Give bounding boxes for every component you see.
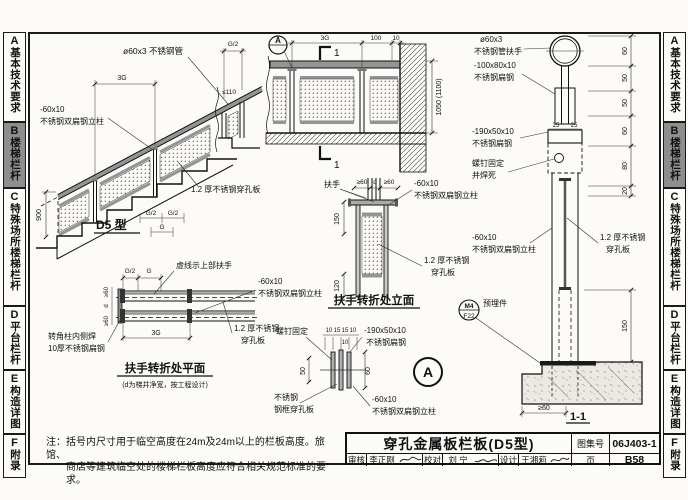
dim-text: 50: [622, 99, 629, 107]
stair-elevation-drawing: 3G G/2 ≤110 900 ø60x3 不锈钢管 -60x10: [36, 41, 262, 259]
dim-da-50: 50: [300, 356, 311, 384]
label-panel-frame-2: 钢框穿孔板: [274, 404, 314, 414]
signature-scribble: [550, 455, 570, 465]
sidebar-item-appendix: F附录: [663, 434, 686, 478]
label-post-desc: 不锈钢双扁钢立柱: [472, 244, 536, 254]
caption-turn-elevation: 扶手转折处立面: [334, 293, 415, 307]
tab-letter: B: [671, 125, 679, 137]
dim-text: 1050 (1100): [436, 78, 443, 115]
sheet-title: 穿孔金属板栏板(D5型): [347, 434, 571, 453]
dim-text: 150: [622, 320, 629, 332]
label-tube-size: ø60x3: [480, 35, 503, 44]
dim-text: 50: [300, 367, 307, 375]
label-tube-desc: 不锈钢管扶手: [474, 46, 522, 56]
tab-label: 特殊场所楼梯栏杆: [8, 203, 21, 291]
label-panel-frame-1: 不锈钢: [274, 392, 298, 402]
dim-text: 25: [571, 123, 578, 129]
tab-letter: B: [11, 125, 19, 137]
dim-text: 20: [622, 187, 629, 195]
label-panel-size: 1.2 厚不锈钢: [424, 255, 469, 265]
label-screw-fix: 螺钉固定: [276, 326, 308, 336]
sidebar-item-special-stair-railing: C特殊场所楼梯栏杆: [3, 188, 26, 306]
tab-letter: F: [671, 437, 678, 449]
dim-text: d: [104, 304, 110, 307]
tab-label: 基本技术要求: [668, 47, 681, 113]
dim-text: G/2: [125, 268, 136, 275]
label-handrail-tube: ø60x3 不锈钢管: [123, 46, 183, 56]
sidebar-item-special-stair-railing: C特殊场所楼梯栏杆: [663, 188, 686, 306]
label-handrail: 扶手: [324, 179, 340, 189]
dim-text: ≥60: [384, 179, 395, 186]
handrail-turn-elevation: ≥60 d ≥60 扶手 150 120 -60x10 不锈钢双扁: [324, 178, 478, 308]
caption-turn-plan-sub: (d为梯井净宽，按工程设计): [122, 380, 208, 389]
sidebar-item-construction-details: E构造详图: [3, 370, 26, 434]
bubble-letter: A: [423, 364, 433, 380]
tab-label: 附录: [668, 449, 681, 471]
tab-label: 平台栏杆: [8, 321, 21, 365]
landing-elevation-drawing: 3G 100 10 1050 (1100) 1 1 A: [266, 35, 443, 172]
label-dashed-handrail: 虚线示上部扶手: [176, 260, 232, 270]
dim-text: 10: [392, 35, 400, 42]
dim-text: 120: [334, 280, 341, 292]
handrail-turn-plan: G/2 G 3G ≥60 d ≥60 虚线示上部扶手 -60x: [48, 260, 322, 389]
dim-text: d: [373, 179, 377, 186]
dim-text: 100: [371, 35, 382, 42]
proofreader-label: 校对: [423, 454, 443, 466]
dim-text: 25: [553, 123, 560, 129]
page-label: 页: [571, 454, 609, 466]
atlas-no-label: 图集号: [571, 434, 609, 453]
dim-text: 15: [334, 328, 341, 334]
label-post-size: -60x10: [372, 395, 397, 404]
label-panel-size: 1.2 厚不锈钢: [600, 232, 645, 242]
sidebar-item-appendix: F附录: [3, 434, 26, 478]
tab-label: 楼梯栏杆: [8, 137, 21, 181]
sheet-note: 注：括号内尺寸用于临空高度在24m及24m以上的栏板高度。旅馆、 商店等建筑临空…: [46, 437, 344, 487]
dim-text: G: [159, 224, 164, 231]
dim-text: 10: [350, 328, 357, 334]
designer-signature: [549, 454, 571, 466]
label-plate-size: -190x50x10: [472, 127, 514, 136]
designer-name: 王湘莉: [519, 454, 549, 466]
bubble-detail-no: M4: [464, 303, 473, 310]
reviewer-name: 李正刚: [367, 454, 397, 466]
dim-1050: 1050 (1100): [426, 59, 443, 135]
reviewer-label: 审核: [347, 454, 367, 466]
label-bar-desc: 不锈钢扁钢: [474, 72, 514, 82]
dim-text: 900: [36, 209, 43, 221]
bubble-letter: A: [275, 36, 281, 45]
caption-d5: D5 型: [96, 217, 127, 232]
tab-label: 平台栏杆: [668, 321, 681, 365]
label-panel-size: 1.2 厚不锈钢: [234, 323, 279, 333]
tab-label: 基本技术要求: [8, 47, 21, 113]
sidebar-item-basic-requirements: A基本技术要求: [663, 32, 686, 122]
tab-letter: D: [671, 309, 679, 321]
label-corner-weld: 转角柱内侧焊: [48, 331, 96, 341]
dim-text: 60: [365, 367, 372, 375]
reviewer-signature: [397, 454, 423, 466]
caption-section-1-1: 1-1: [570, 411, 586, 423]
section-mark-label: 1: [334, 160, 340, 171]
dim-text: G/2: [228, 41, 239, 48]
dim-text: 15: [342, 328, 349, 334]
label-post-size: -60x10: [414, 179, 439, 188]
tab-letter: A: [671, 35, 679, 47]
dim-text: 3G: [117, 75, 126, 82]
dim-text: 10: [326, 328, 333, 334]
designer-label: 设计: [499, 454, 519, 466]
label-post-size: -60x10: [472, 233, 497, 242]
section-mark-1-bottom: [320, 146, 331, 159]
page-number: B58: [609, 454, 659, 466]
dim-plan-top: G/2 G: [121, 268, 163, 291]
dim-text: 60: [622, 47, 629, 55]
label-corner-weld-2: 10厚不锈钢扁钢: [48, 343, 105, 353]
signature-scribble: [474, 455, 498, 465]
label-perf-panel: 1.2 厚不锈钢穿孔板: [191, 184, 260, 194]
dim-gap-110: ≤110: [222, 89, 236, 96]
dim-text: 50: [622, 74, 629, 82]
section-1-1: 25 25: [459, 34, 645, 423]
label-screw-fix: 螺钉固定: [472, 158, 504, 168]
note-line-1: 注：括号内尺寸用于临空高度在24m及24m以上的栏板高度。旅馆、: [46, 437, 325, 461]
dim-text: 80: [622, 162, 629, 170]
label-panel-desc: 穿孔板: [606, 244, 630, 254]
tab-letter: C: [11, 191, 19, 203]
dim-chain-right: 60 50 50 60 80 20: [588, 34, 636, 198]
dim-text: 10: [342, 340, 349, 346]
dim-900: 900: [36, 190, 56, 239]
standard-atlas-page: A基本技术要求 B楼梯栏杆 C特殊场所楼梯栏杆 D平台栏杆 E构造详图 F附录 …: [0, 0, 688, 500]
label-embedded-part: 预埋件: [483, 298, 507, 308]
section-mark-label: 1: [334, 48, 340, 59]
note-line-2: 商店等建筑临空处的楼梯栏板高度应符合相关规范标准的要求。: [46, 462, 344, 487]
section-mark-1-top: [320, 47, 331, 60]
tab-label: 构造详图: [8, 385, 21, 429]
sidebar-item-basic-requirements: A基本技术要求: [3, 32, 26, 122]
sidebar-item-platform-railing: D平台栏杆: [663, 306, 686, 370]
dim-150: 150: [584, 288, 636, 364]
dim-text: G: [146, 268, 151, 275]
sidebar-item-platform-railing: D平台栏杆: [3, 306, 26, 370]
dim-plan-left: ≥60 d ≥60: [104, 286, 112, 326]
dim-text: 150: [334, 213, 341, 225]
tab-label: 构造详图: [668, 385, 681, 429]
dim-text: ≥60: [104, 315, 110, 326]
dim-text: ≥60: [104, 286, 110, 297]
dim-g-cluster: G/2 G/2 G: [140, 210, 184, 237]
tab-letter: A: [11, 35, 19, 47]
tab-label: 楼梯栏杆: [668, 137, 681, 181]
sidebar-item-stair-railing: B楼梯栏杆: [3, 122, 26, 188]
label-panel-desc: 穿孔板: [241, 335, 265, 345]
signature-scribble: [398, 455, 422, 465]
label-flat-bar-size: -190x50x10: [364, 326, 406, 335]
dim-text: 3G: [321, 35, 330, 42]
tab-letter: E: [671, 373, 678, 385]
label-plate-desc: 不锈钢扁钢: [472, 138, 512, 148]
dim-text: 60: [622, 127, 629, 135]
dim-da-60: 60: [363, 350, 372, 390]
dim-text: G/2: [146, 210, 157, 217]
label-post-desc: 不锈钢双扁钢立柱: [40, 116, 104, 126]
detail-drawings: 3G G/2 ≤110 900 ø60x3 不锈钢管 -60x10: [28, 32, 661, 465]
label-flat-bar-desc: 不锈钢扁钢: [366, 337, 406, 347]
detail-a: 10 15 15 10 10 螺钉固定 -190x50x10 不锈钢扁钢 50: [274, 326, 442, 416]
label-post-desc: 不锈钢双扁钢立柱: [414, 190, 478, 200]
bubble-page-no: F22: [463, 313, 475, 320]
atlas-no-value: 06J403-1: [609, 434, 659, 453]
proofreader-name: 刘 宁: [443, 454, 473, 466]
tab-label: 附录: [8, 449, 21, 471]
label-post-desc: 不锈钢双扁钢立柱: [258, 288, 322, 298]
caption-turn-plan: 扶手转折处平面: [125, 361, 206, 375]
proofreader-signature: [473, 454, 499, 466]
label-post-size: -60x10: [40, 105, 65, 114]
tab-letter: F: [11, 437, 18, 449]
label-bar-size: -100x80x10: [474, 61, 516, 70]
sidebar-item-construction-details: E构造详图: [663, 370, 686, 434]
dim-plan-3g: 3G: [121, 323, 192, 341]
label-panel-desc: 穿孔板: [431, 267, 455, 277]
label-post-desc: 不锈钢双扁钢立柱: [372, 406, 436, 416]
label-post-size: -60x10: [258, 277, 283, 286]
dim-text: G/2: [168, 210, 179, 217]
dim-ge60: ≥60: [520, 405, 568, 417]
tab-letter: C: [671, 191, 679, 203]
dim-text: ≥60: [538, 405, 550, 412]
tab-letter: E: [11, 373, 18, 385]
embed-part-bubble: M4 F22: [459, 300, 479, 320]
dim-turn-150: 150: [334, 200, 346, 236]
dim-text: ≥60: [357, 179, 368, 186]
tab-label: 特殊场所楼梯栏杆: [668, 203, 681, 291]
title-block: 穿孔金属板栏板(D5型) 图集号 06J403-1 审核 李正刚 校对 刘 宁 …: [345, 432, 661, 465]
label-screw-weld: 并焊死: [472, 170, 496, 180]
sidebar-item-stair-railing: B楼梯栏杆: [663, 122, 686, 188]
dim-text: 3G: [151, 330, 160, 337]
tab-letter: D: [11, 309, 19, 321]
